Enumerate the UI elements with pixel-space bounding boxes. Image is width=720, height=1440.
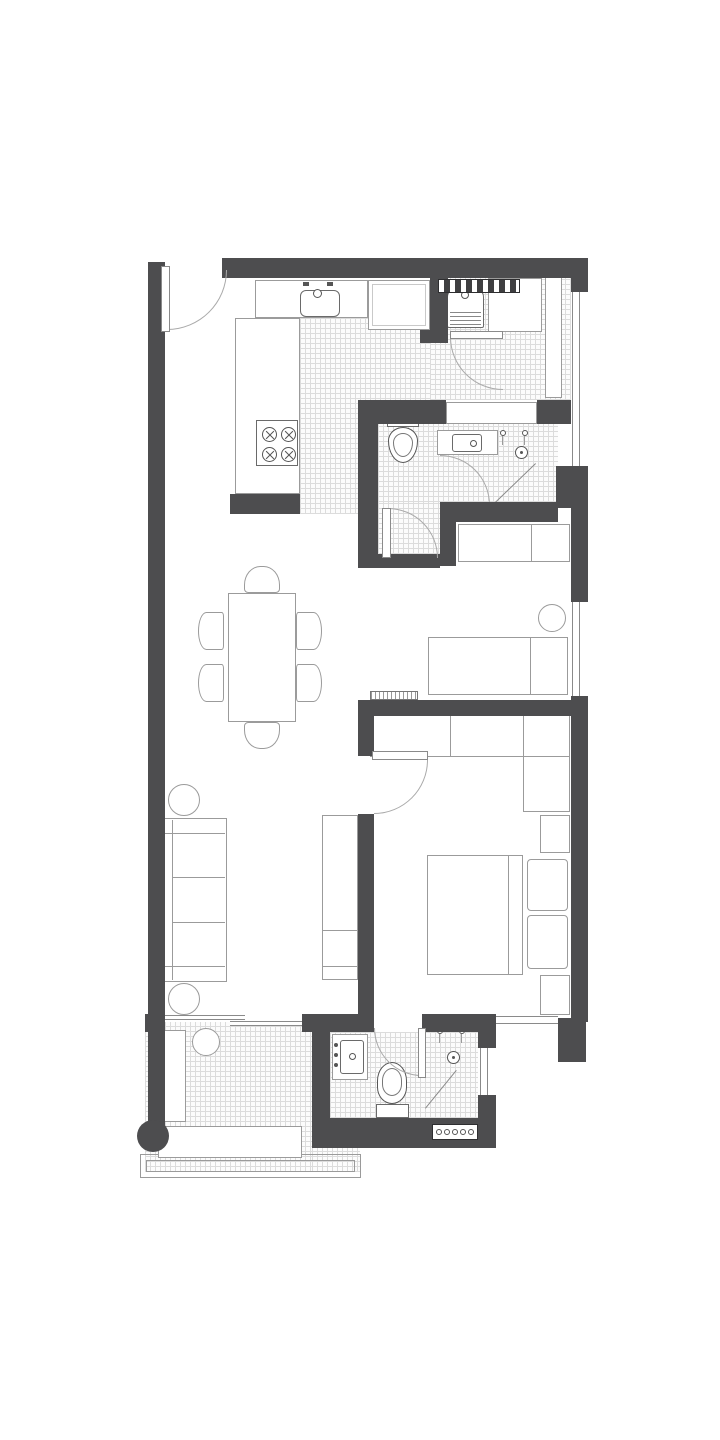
sofa-back-line xyxy=(172,820,173,980)
master-vent-strip xyxy=(370,691,418,700)
laundry-door-leaf xyxy=(450,331,503,339)
tv-unit xyxy=(322,815,358,980)
wall-right-middle xyxy=(571,466,588,602)
dining-chair xyxy=(244,722,280,749)
kitchen-tap-icon xyxy=(327,282,333,286)
sofa-armrest-line xyxy=(161,833,225,834)
sofa-armrest-line xyxy=(161,966,225,967)
bedroom2-stool xyxy=(538,604,566,632)
ensuite-toilet-cistern xyxy=(376,1104,409,1118)
wall-right-upper xyxy=(571,258,588,292)
laundry-tall-cabinet xyxy=(545,275,562,398)
sofa xyxy=(160,818,227,982)
window-master-bottom xyxy=(496,1016,558,1024)
bedroom2-wardrobe xyxy=(458,524,570,562)
balcony-bench-horizontal xyxy=(158,1126,302,1158)
cooktop-burner-icon xyxy=(281,427,296,442)
master-door-swing xyxy=(374,760,428,814)
washing-machine-drum-hatch xyxy=(450,312,481,325)
shower-tap-stem xyxy=(502,436,503,445)
ensuite-vanity-faucet xyxy=(349,1053,356,1060)
ensuite-tap-icon xyxy=(334,1053,338,1057)
kitchen-sink-faucet xyxy=(313,289,322,298)
ensuite-shower-dot xyxy=(452,1056,455,1059)
bedroom2-bed-desk xyxy=(428,637,568,695)
vent-circle-icon xyxy=(452,1129,458,1135)
bathroom-recessed-shelf xyxy=(446,402,537,424)
tv-unit-divider xyxy=(322,966,358,967)
vent-circle-icon xyxy=(436,1129,442,1135)
cooktop xyxy=(256,420,298,466)
vent-circle-icon xyxy=(444,1129,450,1135)
ensuite-door-leaf xyxy=(418,1028,426,1078)
wall-pier-bottom-right xyxy=(558,1018,586,1062)
shower-tap-icon xyxy=(522,430,528,436)
master-wardrobe-divider xyxy=(523,713,524,757)
kitchen-counter-left xyxy=(235,318,300,494)
window-ensuite xyxy=(480,1048,488,1095)
cooktop-burner-icon xyxy=(281,447,296,462)
ensuite-shower-tap-stem xyxy=(461,1034,462,1043)
cooktop-burner-icon xyxy=(262,427,277,442)
bathroom-vanity-sink xyxy=(452,434,482,452)
shower-tap-icon xyxy=(500,430,506,436)
wall-left xyxy=(148,262,165,1126)
vent-circle-icon xyxy=(468,1129,474,1135)
wall-bathroom-left xyxy=(358,400,378,568)
wall-ensuite-right-upper xyxy=(478,1014,496,1048)
wall-kitchen-counter-stub xyxy=(230,494,300,514)
balcony-sliding-door-panel xyxy=(165,1015,245,1020)
shower-drain-dot xyxy=(520,451,523,454)
master-door-leaf xyxy=(372,751,428,760)
ensuite-tap-icon xyxy=(334,1063,338,1067)
dining-chair xyxy=(296,664,322,702)
master-nightstand-top xyxy=(540,815,570,853)
master-wardrobe-right xyxy=(523,756,570,812)
wall-laundry-door-stub xyxy=(420,330,448,343)
master-pillow xyxy=(527,915,568,969)
structural-column xyxy=(137,1120,169,1152)
wall-bathroom-bottom-right xyxy=(440,502,558,522)
wall-balcony-left-stub xyxy=(145,1014,165,1032)
window-right-bedroom2 xyxy=(572,602,580,696)
balcony-sliding-door-panel xyxy=(230,1021,302,1026)
cooktop-burner-icon xyxy=(262,447,277,462)
window-right-upper xyxy=(572,292,580,466)
dining-chair xyxy=(198,664,224,702)
dining-chair xyxy=(198,612,224,650)
balcony-railing-inner xyxy=(146,1160,355,1172)
dining-chair xyxy=(296,612,322,650)
dining-table xyxy=(228,593,296,722)
ensuite-shower-tap-stem xyxy=(439,1034,440,1043)
master-pillow xyxy=(527,859,568,911)
shower-tap-stem xyxy=(524,436,525,445)
bathroom-vanity-faucet xyxy=(470,440,477,447)
floor-plan-canvas xyxy=(0,0,720,1440)
ensuite-tap-icon xyxy=(334,1043,338,1047)
fridge-inner-line xyxy=(372,284,426,326)
entry-door-swing xyxy=(167,270,227,330)
laundry-vent-grille xyxy=(438,279,520,293)
wall-master-left-lower xyxy=(358,814,374,1032)
sofa-cushion-line xyxy=(172,877,225,878)
ensuite-vent-grille xyxy=(432,1124,478,1140)
entry-door-leaf xyxy=(161,266,170,332)
master-wardrobe-divider xyxy=(450,713,451,757)
bedroom2-wardrobe-divider xyxy=(531,524,532,562)
wall-top xyxy=(222,258,588,278)
wall-bathroom-top-right xyxy=(537,400,571,424)
round-side-table xyxy=(168,784,200,816)
wall-right-lower xyxy=(571,696,588,1022)
sofa-cushion-line xyxy=(172,922,225,923)
balcony-round-table xyxy=(192,1028,220,1056)
vent-circle-icon xyxy=(460,1129,466,1135)
tv-unit-divider xyxy=(322,930,358,931)
wall-master-left-upper xyxy=(358,716,374,756)
kitchen-tap-icon xyxy=(303,282,309,286)
master-bed-fold-line xyxy=(508,855,509,975)
dining-chair xyxy=(244,566,280,593)
wall-bedroom2-left xyxy=(440,502,456,566)
wall-master-top xyxy=(358,700,571,716)
wall-pier-right-middle xyxy=(556,466,571,508)
bathroom-door-leaf xyxy=(382,508,391,558)
bedroom2-bed-desk-divider xyxy=(530,637,531,695)
round-side-table xyxy=(168,983,200,1015)
ensuite-toilet-bowl-inner xyxy=(382,1068,402,1096)
master-nightstand-bottom xyxy=(540,975,570,1015)
